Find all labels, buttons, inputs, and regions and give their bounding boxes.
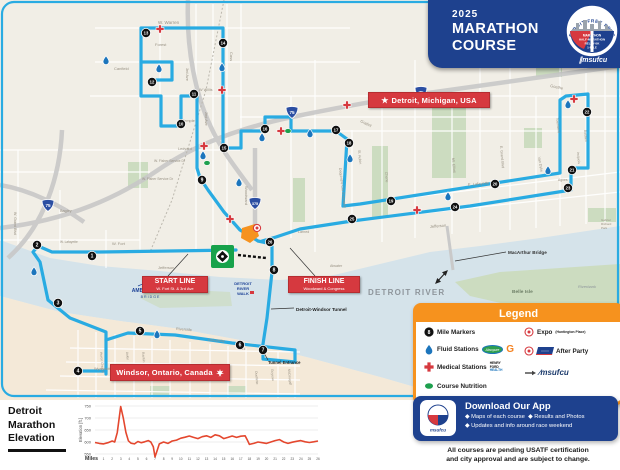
svg-text:4: 4: [77, 369, 80, 375]
expo-icon: [524, 327, 534, 337]
elevation-xtick: 14: [213, 457, 217, 461]
elevation-xlabel: Miles: [85, 456, 98, 462]
disclaimer: All courses are pending USATF certificat…: [420, 447, 616, 464]
elevation-xtick: 10: [179, 457, 183, 461]
elevation-xtick: 3: [120, 457, 122, 461]
race-badge-logo: DETROIT FREE PRESS MARATHON HALF-MARATHO…: [564, 3, 620, 61]
elevation-xtick: 20: [265, 457, 269, 461]
svg-text:16: 16: [263, 127, 268, 132]
street-label: 3rd Ave: [185, 68, 189, 81]
elevation-xtick: 2: [111, 457, 113, 461]
svg-text:15: 15: [222, 146, 227, 151]
tunnel-entrance-label: Tunnel Entrance: [268, 360, 301, 365]
mile-marker-14: 14: [218, 38, 227, 47]
elevation-xtick: 6: [146, 457, 148, 461]
svg-text:22: 22: [585, 110, 590, 115]
elevation-xtick: 19: [256, 457, 260, 461]
svg-text:75: 75: [45, 203, 51, 208]
mile-marker-17: 17: [331, 125, 340, 134]
mile-marker-7: 7: [258, 345, 267, 354]
mile-marker-3: 3: [53, 298, 62, 307]
street-label: Bagley: [60, 209, 72, 213]
mile-marker-18: 18: [344, 138, 353, 147]
header: 2025 MARATHON COURSE DETROIT FREE PRESS …: [428, 0, 620, 68]
header-title-line2: COURSE: [452, 38, 516, 54]
street-label: Agnes: [558, 178, 568, 182]
legend-sponsor: ∕msufcu: [524, 368, 569, 377]
elevation-xtick: 22: [282, 457, 286, 461]
mile-marker-20: 20: [490, 179, 499, 188]
mile-marker-26: 26: [265, 237, 274, 246]
finish-line-label: FINISH LINE Woodward & Congress: [288, 276, 360, 293]
svg-text:23: 23: [566, 186, 571, 191]
download-bullets-line2: ◆ Updates and info around race weekend: [465, 423, 572, 429]
mile-marker-2: 2: [32, 240, 41, 249]
svg-text:7: 7: [262, 348, 265, 354]
legend-after-party: —— After Party: [524, 346, 588, 356]
download-title: Download Our App: [465, 401, 551, 412]
fluid-station-icon: [424, 344, 434, 355]
nutrition-marker: [204, 161, 210, 166]
elevation-ytick: 700: [84, 416, 91, 421]
medical-station-icon: [424, 362, 434, 372]
street-label: Forest: [155, 42, 167, 47]
svg-text:8: 8: [273, 268, 276, 274]
svg-text:375: 375: [252, 202, 258, 206]
street-label: 2nd Ave: [204, 112, 208, 126]
street-label: W Willis: [199, 88, 213, 92]
download-bullets-line1: ◆ Maps of each course ◆ Results and Phot…: [465, 414, 584, 420]
elevation-ytick: 600: [84, 440, 91, 445]
legend: Legend 8 Mile Markers Fluid Stations Abs…: [413, 303, 620, 405]
download-app-box[interactable]: msufcu Download Our App ◆ Maps of each c…: [413, 396, 618, 441]
star-icon: ★: [381, 96, 388, 105]
elevation-chart: 5506006507007501234567891011121314151617…: [0, 398, 330, 470]
svg-text:msufcu: msufcu: [430, 428, 446, 433]
macarthur-label: MacArthur Bridge: [508, 250, 547, 255]
mile-marker-10: 10: [176, 119, 185, 128]
svg-text:24: 24: [453, 205, 458, 210]
mile-marker-16: 16: [260, 124, 269, 133]
svg-text:14: 14: [221, 41, 226, 46]
detroit-label: ★ Detroit, Michigan, USA: [368, 92, 490, 108]
street-label: W. Fisher Service Dr: [142, 177, 174, 181]
svg-text:5: 5: [139, 329, 142, 335]
street-label: Woodward: [244, 186, 249, 205]
elevation-ytick: 750: [84, 404, 91, 409]
street-label: Jefferson: [158, 265, 174, 270]
msufcu-logo: ∕msufcu: [539, 368, 569, 377]
legend-mile-markers: 8 Mile Markers: [424, 327, 475, 337]
belle-isle-label: Belle Isle: [512, 289, 533, 295]
elevation-xtick: 26: [316, 457, 320, 461]
riverbank-label: Riverbank: [578, 284, 597, 289]
elevation-xtick: 21: [273, 457, 277, 461]
street-label: W. Lafayette: [60, 240, 78, 244]
mile-marker-25: 25: [347, 214, 356, 223]
detroit-river-label: DETROIT RIVER: [368, 288, 445, 297]
after-party-sponsor-logo: ——: [536, 347, 554, 355]
mile-marker-9: 9: [197, 175, 206, 184]
svg-text:8: 8: [428, 330, 431, 336]
gatorade-logo: G: [506, 346, 514, 354]
legend-fluid: Fluid Stations Absopure G: [424, 344, 514, 355]
street-label: W. Grand Blvd: [13, 212, 17, 235]
elevation-ylabel: Elevation [ft.]: [78, 418, 83, 442]
svg-text:26: 26: [268, 240, 273, 245]
elevation-xtick: 8: [163, 457, 165, 461]
elevation-xtick: 4: [128, 457, 130, 461]
legend-expo: Expo (Huntington Place): [524, 327, 586, 337]
elevation-xtick: 17: [239, 457, 243, 461]
svg-text:75: 75: [289, 110, 295, 115]
street-label: Cass: [229, 52, 234, 61]
street-label: W. Fisher Service Dr: [154, 159, 186, 163]
elevation-xtick: 18: [248, 457, 252, 461]
nutrition-marker: [285, 129, 291, 134]
tunnel-label: Detroit-Windsor Tunnel: [296, 307, 347, 312]
mile-marker-24: 24: [450, 202, 459, 211]
svg-text:25: 25: [350, 217, 355, 222]
mile-marker-1: 1: [87, 251, 96, 260]
mile-marker-6: 6: [235, 340, 244, 349]
legend-title: Legend: [416, 306, 620, 322]
svg-text:20: 20: [493, 182, 498, 187]
svg-text:13: 13: [144, 31, 149, 36]
maple-leaf-icon: [216, 369, 224, 377]
svg-text:10: 10: [179, 122, 184, 127]
svg-text:19: 19: [389, 199, 394, 204]
street-label: Atwater: [330, 264, 343, 268]
absopure-logo: Absopure: [482, 345, 504, 354]
mile-marker-19: 19: [386, 196, 395, 205]
street-label: W. Warren: [158, 20, 180, 25]
elevation-xtick: 24: [299, 457, 303, 461]
mile-marker-23: 23: [563, 183, 572, 192]
elevation-xtick: 23: [290, 457, 294, 461]
course-nutrition-icon: [424, 382, 434, 390]
svg-text:3: 3: [57, 301, 60, 307]
mile-marker-13: 13: [141, 28, 150, 37]
mile-marker-21: 21: [567, 165, 576, 174]
elevation-xtick: 1: [103, 457, 105, 461]
street-label: Park: [601, 226, 608, 230]
expo-marker: [253, 224, 260, 231]
svg-text:12: 12: [150, 80, 155, 85]
street-label: Askin: [125, 352, 130, 361]
mile-marker-icon: 8: [424, 327, 434, 337]
svg-text:18: 18: [347, 141, 352, 146]
svg-text:1: 1: [91, 254, 94, 260]
elevation-line: [95, 407, 318, 457]
street-label: Ledyard: [178, 147, 192, 151]
elevation-xtick: 13: [205, 457, 209, 461]
after-party-icon: [524, 346, 534, 356]
mile-marker-8: 8: [269, 265, 278, 274]
mile-marker-22: 22: [582, 107, 591, 116]
legend-medical: Medical Stations HENRY FORD HEALTH: [424, 362, 502, 373]
mile-marker-11: 11: [189, 89, 198, 98]
svg-text:1-MILE: 1-MILE: [587, 46, 597, 50]
elevation-xtick: 5: [137, 457, 139, 461]
elevation-xtick: 15: [222, 457, 226, 461]
svg-text:11: 11: [192, 92, 197, 97]
street-label: Larned: [298, 230, 309, 234]
elevation-xtick: 12: [196, 457, 200, 461]
mile-marker-4: 4: [73, 366, 82, 375]
elevation-ytick: 650: [84, 428, 91, 433]
header-title-line1: MARATHON: [452, 21, 539, 37]
header-year: 2025: [452, 9, 478, 20]
svg-text:21: 21: [570, 168, 575, 173]
header-sponsor-logo: ∥msufcu: [562, 56, 620, 64]
svg-text:6: 6: [239, 343, 242, 349]
henry-ford-health-logo: HENRY FORD HEALTH: [490, 362, 503, 373]
relay-arrow-icon: [524, 370, 536, 376]
svg-text:9: 9: [201, 178, 204, 184]
mile-marker-15: 15: [219, 143, 228, 152]
start-line-label: START LINE W. Fort St. & 3rd Ave: [142, 276, 208, 293]
street-label: W. Fort: [112, 241, 126, 246]
app-icon: msufcu: [420, 400, 456, 436]
elevation-xtick: 9: [171, 457, 173, 461]
expo-markers: [253, 224, 260, 231]
elevation-xtick: 25: [308, 457, 312, 461]
marathon-course-map-page: DETROIT RIVER Belle Isle Riverbank MacAr…: [0, 0, 620, 470]
legend-nutrition: Course Nutrition: [424, 382, 487, 390]
svg-text:B R I D G E: B R I D G E: [141, 295, 160, 299]
svg-text:17: 17: [334, 128, 339, 133]
svg-text:2: 2: [36, 243, 39, 249]
svg-text:WALK: WALK: [237, 291, 249, 296]
mile-marker-12: 12: [147, 77, 156, 86]
elevation-xtick: 11: [188, 457, 192, 461]
street-label: Canfield: [114, 66, 129, 71]
windsor-label: Windsor, Ontario, Canada: [110, 364, 230, 381]
hart-plaza-marker: [211, 245, 234, 268]
mile-marker-5: 5: [135, 326, 144, 335]
elevation-xtick: 16: [230, 457, 234, 461]
